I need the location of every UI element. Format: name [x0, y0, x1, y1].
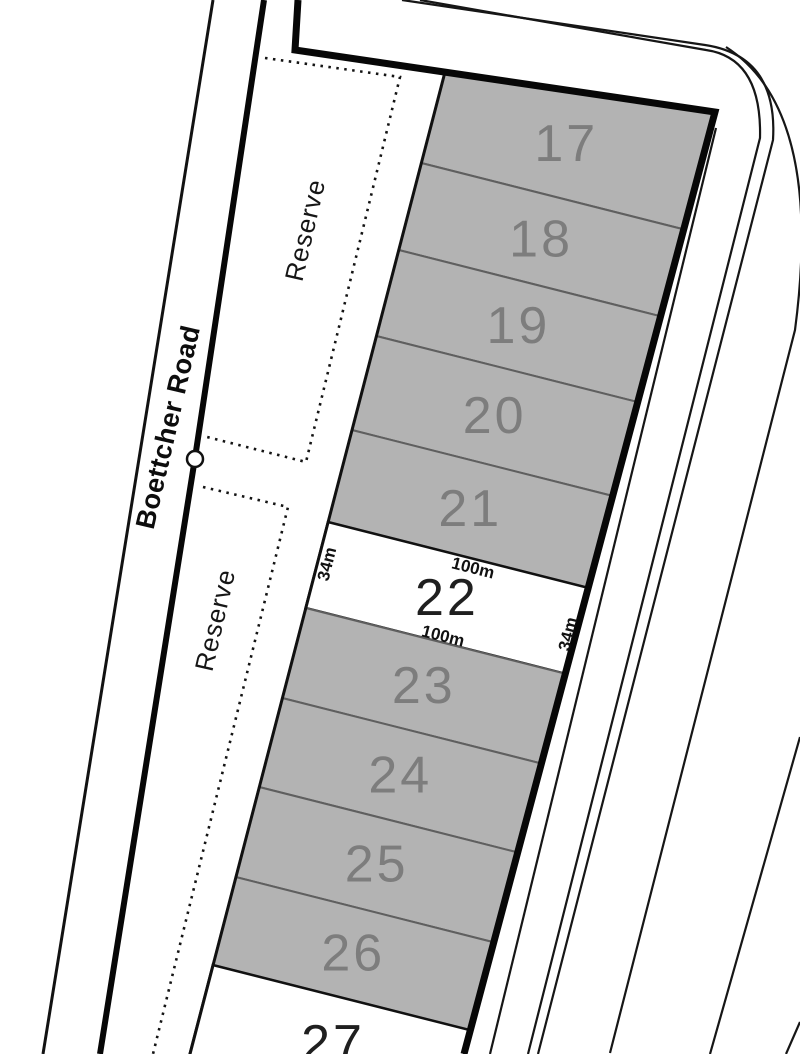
plan-drawing: 1718192021222324252627 Boettcher Road Re… — [0, 0, 800, 1054]
far-east-boundary-line — [710, 737, 800, 1054]
lot-number-22: 22 — [415, 569, 479, 627]
subdivision-plan: 1718192021222324252627 Boettcher Road Re… — [0, 0, 800, 1054]
road-name-label: Boettcher Road — [130, 322, 206, 531]
lot-number-23: 23 — [392, 657, 456, 715]
lot-number-24: 24 — [368, 746, 432, 804]
lot-number-27: 27 — [301, 1015, 365, 1054]
reserve-upper-label: Reserve — [279, 176, 332, 284]
lot-number-17: 17 — [534, 115, 598, 173]
lot-number-25: 25 — [345, 836, 409, 894]
lots-layer: 1718192021222324252627 — [165, 72, 715, 1054]
corner-boundary-line — [786, 1022, 800, 1054]
lot-number-21: 21 — [438, 480, 502, 538]
road-survey-marker-circle — [187, 451, 203, 467]
lot-number-26: 26 — [321, 925, 385, 983]
reserve-lower-label: Reserve — [189, 566, 242, 674]
lot-number-18: 18 — [509, 211, 573, 269]
lot-number-19: 19 — [486, 297, 550, 355]
lot-number-20: 20 — [463, 387, 527, 445]
